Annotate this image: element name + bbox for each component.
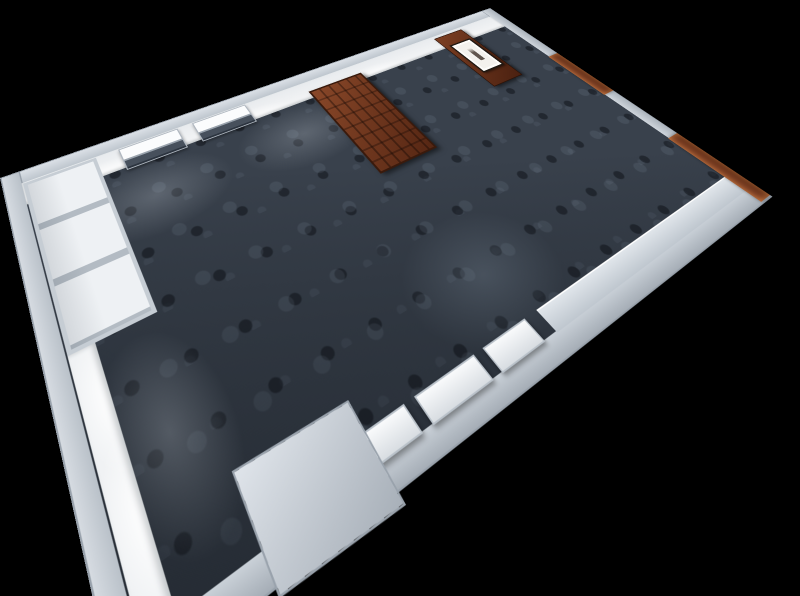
cap	[514, 78, 552, 98]
plant	[96, 186, 132, 230]
plant-sm	[372, 420, 394, 448]
office-3d-render: 3D isometric cutaway rendering of an off…	[0, 0, 800, 596]
plant	[243, 250, 273, 288]
overlay-layer	[0, 0, 800, 596]
door	[698, 156, 770, 254]
lamp	[545, 278, 561, 310]
plant	[192, 278, 226, 320]
plant-lg	[414, 44, 460, 100]
lamp	[486, 226, 501, 256]
plant-lg	[490, 18, 532, 70]
plant	[312, 96, 344, 136]
col-c	[336, 88, 394, 146]
